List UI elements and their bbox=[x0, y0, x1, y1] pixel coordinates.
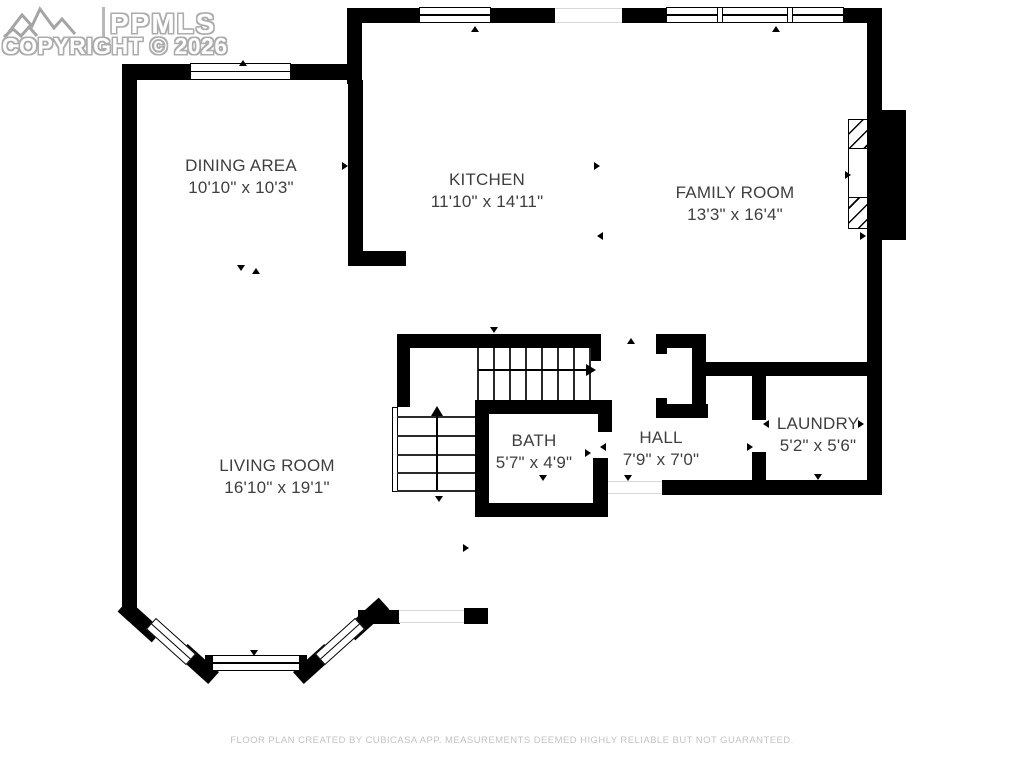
room-name: FAMILY ROOM bbox=[625, 182, 845, 204]
floor-plan-page: { "watermark": { "logo_icon": "mountains… bbox=[0, 0, 1024, 767]
room-name: DINING AREA bbox=[131, 155, 351, 177]
door-opening bbox=[608, 481, 662, 494]
measure-arrow-icon bbox=[237, 265, 245, 271]
stair-arrow-shaft bbox=[436, 414, 438, 490]
room-dimensions: 11'10" x 14'11" bbox=[377, 191, 597, 213]
measure-arrow-icon bbox=[126, 162, 132, 170]
wall-segment bbox=[662, 480, 882, 495]
wall-segment bbox=[475, 400, 489, 517]
window-pane-line bbox=[667, 14, 843, 16]
measure-arrow-icon bbox=[597, 232, 603, 240]
window-pane-line bbox=[320, 623, 360, 659]
window-pane-line bbox=[191, 71, 290, 73]
floor-plan: DINING AREA 10'10" x 10'3" KITCHEN 11'10… bbox=[0, 0, 1024, 767]
measure-arrow-icon bbox=[600, 443, 606, 451]
window-pane-line bbox=[213, 662, 299, 664]
watermark-copyright: COPYRIGHT © 2026 bbox=[2, 33, 228, 60]
wall-segment bbox=[475, 400, 612, 414]
room-name: KITCHEN bbox=[377, 169, 597, 191]
window-pane-line bbox=[151, 623, 191, 659]
stair-arrow-icon bbox=[431, 406, 443, 416]
measure-arrow-icon bbox=[860, 232, 866, 240]
measure-arrow-icon bbox=[463, 544, 469, 552]
wall-segment bbox=[475, 503, 608, 517]
window-mullion bbox=[787, 8, 793, 22]
window-mullion bbox=[717, 8, 723, 22]
measure-arrow-icon bbox=[471, 26, 479, 32]
wall-segment bbox=[347, 8, 422, 23]
measure-arrow-icon bbox=[845, 171, 851, 179]
measure-arrow-icon bbox=[435, 496, 443, 502]
room-name: LIVING ROOM bbox=[167, 455, 387, 477]
measure-arrow-icon bbox=[594, 162, 600, 170]
footer-disclaimer: FLOOR PLAN CREATED BY CUBICASA APP. MEAS… bbox=[0, 735, 1024, 746]
measure-arrow-icon bbox=[772, 26, 780, 32]
wall-segment bbox=[598, 400, 612, 432]
stair-tread bbox=[477, 348, 479, 400]
measure-arrow-icon bbox=[531, 405, 539, 411]
measure-arrow-icon bbox=[627, 338, 635, 344]
stair-edge-rail bbox=[392, 407, 398, 492]
door-opening bbox=[555, 8, 622, 23]
wall-segment bbox=[656, 334, 667, 354]
measure-arrow-icon bbox=[239, 60, 247, 66]
wall-segment bbox=[656, 398, 667, 418]
stair-tread bbox=[541, 348, 543, 400]
stair-tread bbox=[509, 348, 511, 400]
wall-segment bbox=[593, 458, 608, 517]
measure-arrow-icon bbox=[356, 162, 362, 170]
wall-segment bbox=[348, 251, 406, 266]
measure-arrow-icon bbox=[814, 474, 822, 480]
bay-window bbox=[315, 618, 365, 665]
wall-segment bbox=[752, 452, 766, 490]
stair-tread bbox=[525, 348, 527, 400]
door-opening bbox=[399, 610, 464, 623]
window bbox=[666, 7, 844, 23]
measure-arrow-icon bbox=[252, 268, 260, 274]
wall-segment bbox=[464, 608, 488, 624]
measure-arrow-icon bbox=[814, 369, 822, 375]
wall-segment bbox=[122, 64, 137, 612]
wall-segment bbox=[397, 334, 410, 407]
stair-arrow-icon bbox=[586, 364, 596, 376]
window-pane-line bbox=[420, 14, 490, 16]
stair-tread bbox=[557, 348, 559, 400]
wall-segment bbox=[348, 80, 363, 266]
wall-segment bbox=[397, 334, 601, 348]
measure-arrow-icon bbox=[624, 475, 632, 481]
wall-segment bbox=[621, 8, 668, 23]
measure-arrow-icon bbox=[585, 449, 591, 457]
room-label-kitchen: KITCHEN 11'10" x 14'11" bbox=[377, 169, 597, 213]
measure-arrow-icon bbox=[477, 449, 483, 457]
room-label-dining-area: DINING AREA 10'10" x 10'3" bbox=[131, 155, 351, 199]
measure-arrow-icon bbox=[539, 475, 547, 481]
room-label-laundry: LAUNDRY 5'2" x 5'6" bbox=[708, 413, 928, 457]
window bbox=[212, 655, 300, 671]
bay-window bbox=[146, 618, 196, 665]
wall-segment bbox=[880, 110, 906, 240]
measure-arrow-icon bbox=[858, 420, 864, 428]
room-dimensions: 5'2" x 5'6" bbox=[708, 435, 928, 457]
measure-arrow-icon bbox=[342, 162, 348, 170]
window bbox=[419, 7, 491, 23]
wall-segment bbox=[589, 348, 601, 361]
wall-segment bbox=[705, 362, 882, 376]
stair-tread bbox=[397, 490, 475, 492]
wall-segment bbox=[867, 18, 882, 495]
measure-arrow-icon bbox=[763, 420, 769, 428]
watermark: PPMLS COPYRIGHT © 2026 bbox=[0, 2, 230, 62]
room-label-living-room: LIVING ROOM 16'10" x 19'1" bbox=[167, 455, 387, 499]
room-dimensions: 10'10" x 10'3" bbox=[131, 177, 351, 199]
measure-arrow-icon bbox=[490, 327, 498, 333]
room-name: LAUNDRY bbox=[708, 413, 928, 435]
wall-segment bbox=[489, 8, 556, 23]
stair-tread bbox=[493, 348, 495, 400]
stair-tread bbox=[573, 348, 575, 400]
room-label-family-room: FAMILY ROOM 13'3" x 16'4" bbox=[625, 182, 845, 226]
measure-arrow-icon bbox=[250, 650, 258, 656]
room-dimensions: 13'3" x 16'4" bbox=[625, 204, 845, 226]
measure-arrow-icon bbox=[747, 443, 753, 451]
stair-arrow-shaft bbox=[478, 369, 586, 371]
room-dimensions: 16'10" x 19'1" bbox=[167, 477, 387, 499]
wall-segment bbox=[752, 369, 766, 420]
